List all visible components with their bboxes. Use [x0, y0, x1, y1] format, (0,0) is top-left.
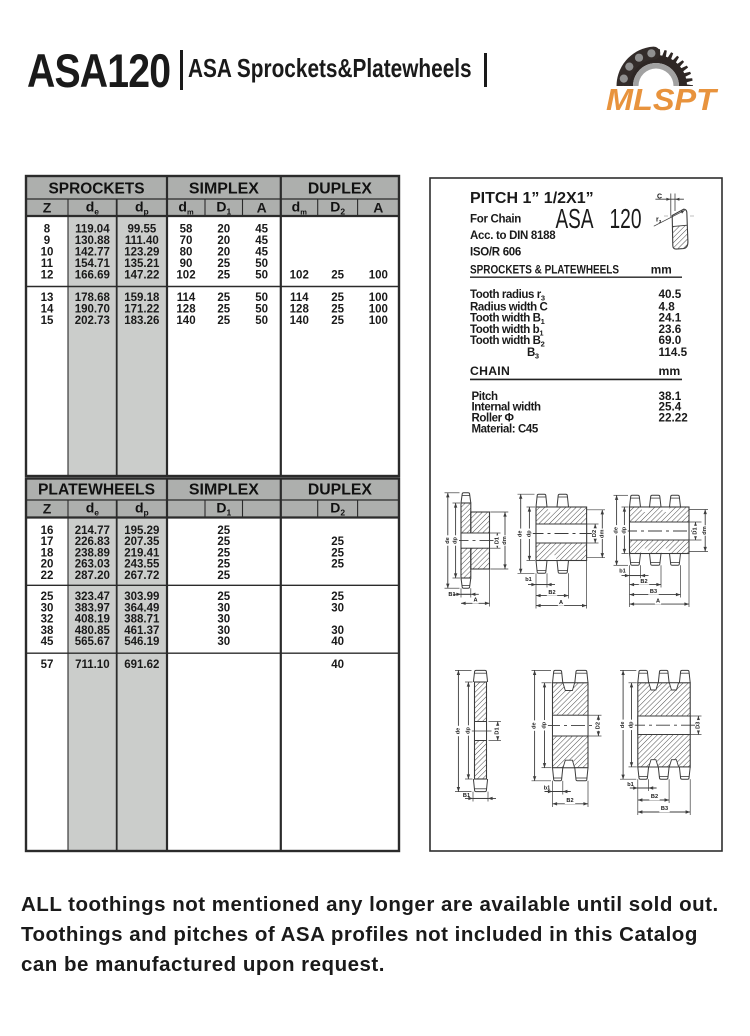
svg-text:b1: b1 — [619, 569, 626, 575]
svg-text:dm: dm — [599, 530, 605, 538]
svg-text:ISO/R 606: ISO/R 606 — [470, 247, 521, 259]
svg-text:mm: mm — [651, 263, 672, 277]
svg-text:de: de — [445, 537, 451, 544]
svg-text:mm: mm — [659, 364, 681, 378]
svg-text:Acc. to DIN 8188: Acc. to DIN 8188 — [470, 230, 556, 242]
svg-text:22.22: 22.22 — [659, 412, 689, 425]
svg-text:b1: b1 — [544, 786, 551, 792]
svg-text:dp: dp — [526, 530, 532, 537]
svg-text:B3: B3 — [661, 806, 668, 812]
svg-text:dp: dp — [621, 526, 627, 533]
svg-text:dp: dp — [453, 537, 459, 544]
svg-text:B3: B3 — [527, 347, 539, 361]
svg-text:CHAIN: CHAIN — [470, 364, 510, 378]
svg-text:Material: C45: Material: C45 — [472, 424, 539, 436]
svg-text:Tooth radius r3: Tooth radius r3 — [470, 289, 545, 303]
svg-text:C: C — [657, 194, 662, 201]
svg-text:D1: D1 — [693, 527, 699, 534]
svg-text:D2: D2 — [592, 530, 598, 537]
svg-text:de: de — [518, 530, 524, 537]
svg-text:de: de — [455, 728, 461, 735]
svg-text:B3: B3 — [650, 589, 657, 595]
svg-text:B1: B1 — [448, 592, 455, 598]
svg-text:B2: B2 — [640, 579, 647, 585]
svg-text:B2: B2 — [566, 798, 573, 804]
svg-text:D3: D3 — [695, 722, 701, 729]
svg-text:D2: D2 — [595, 722, 601, 729]
svg-text:de: de — [614, 527, 620, 534]
svg-text:A: A — [473, 598, 477, 604]
svg-text:40.5: 40.5 — [659, 288, 682, 301]
svg-text:b1: b1 — [627, 782, 634, 788]
svg-text:Radius width C: Radius width C — [470, 301, 548, 313]
svg-text:dp: dp — [542, 721, 548, 728]
svg-text:B2: B2 — [651, 794, 658, 800]
svg-text:A: A — [559, 600, 563, 606]
svg-text:b1: b1 — [525, 577, 532, 583]
svg-text:dp: dp — [465, 727, 471, 734]
svg-text:dm: dm — [702, 526, 708, 534]
svg-text:SPROCKETS & PLATEWHEELS: SPROCKETS & PLATEWHEELS — [470, 263, 619, 277]
svg-text:D1: D1 — [494, 537, 500, 544]
svg-text:dp: dp — [629, 721, 635, 728]
svg-text:For Chain: For Chain — [470, 214, 521, 226]
svg-text:r3: r3 — [656, 217, 662, 225]
svg-text:de: de — [620, 722, 626, 729]
svg-text:D1: D1 — [495, 727, 501, 734]
svg-text:dm: dm — [502, 536, 508, 544]
svg-text:de: de — [532, 722, 538, 729]
svg-text:B2: B2 — [548, 590, 555, 596]
svg-text:114.5: 114.5 — [659, 346, 688, 359]
svg-text:B1: B1 — [463, 793, 470, 799]
svg-text:ASA: ASA — [556, 203, 594, 234]
svg-text:120: 120 — [610, 203, 642, 234]
svg-text:A: A — [656, 598, 660, 604]
